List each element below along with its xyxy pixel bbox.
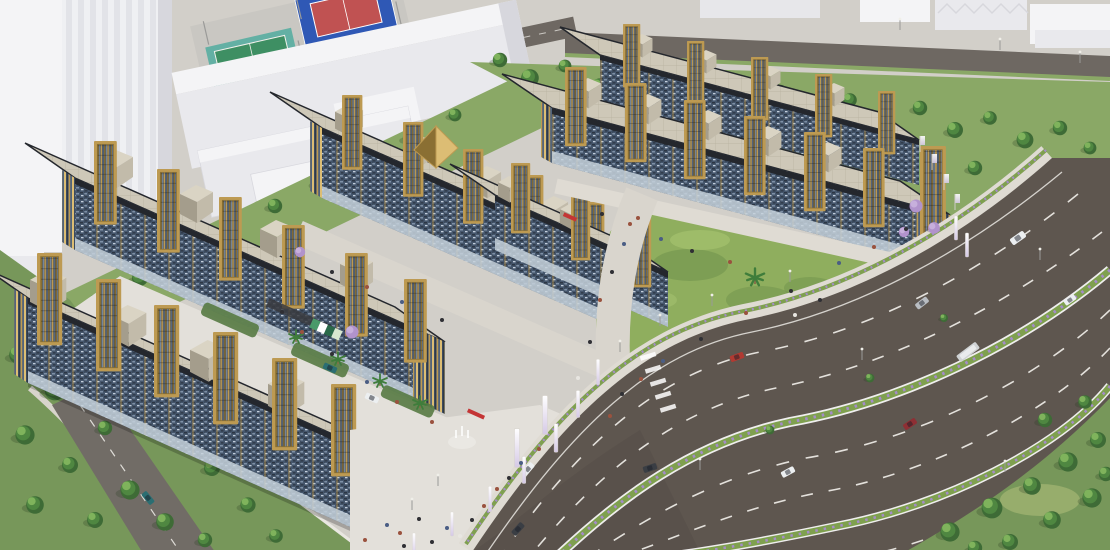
- render-canvas: Aerial 3D rendering of a mixed-use retai…: [0, 0, 1110, 550]
- fountain: [448, 435, 476, 449]
- aerial-render: Aerial 3D rendering of a mixed-use retai…: [0, 0, 1110, 550]
